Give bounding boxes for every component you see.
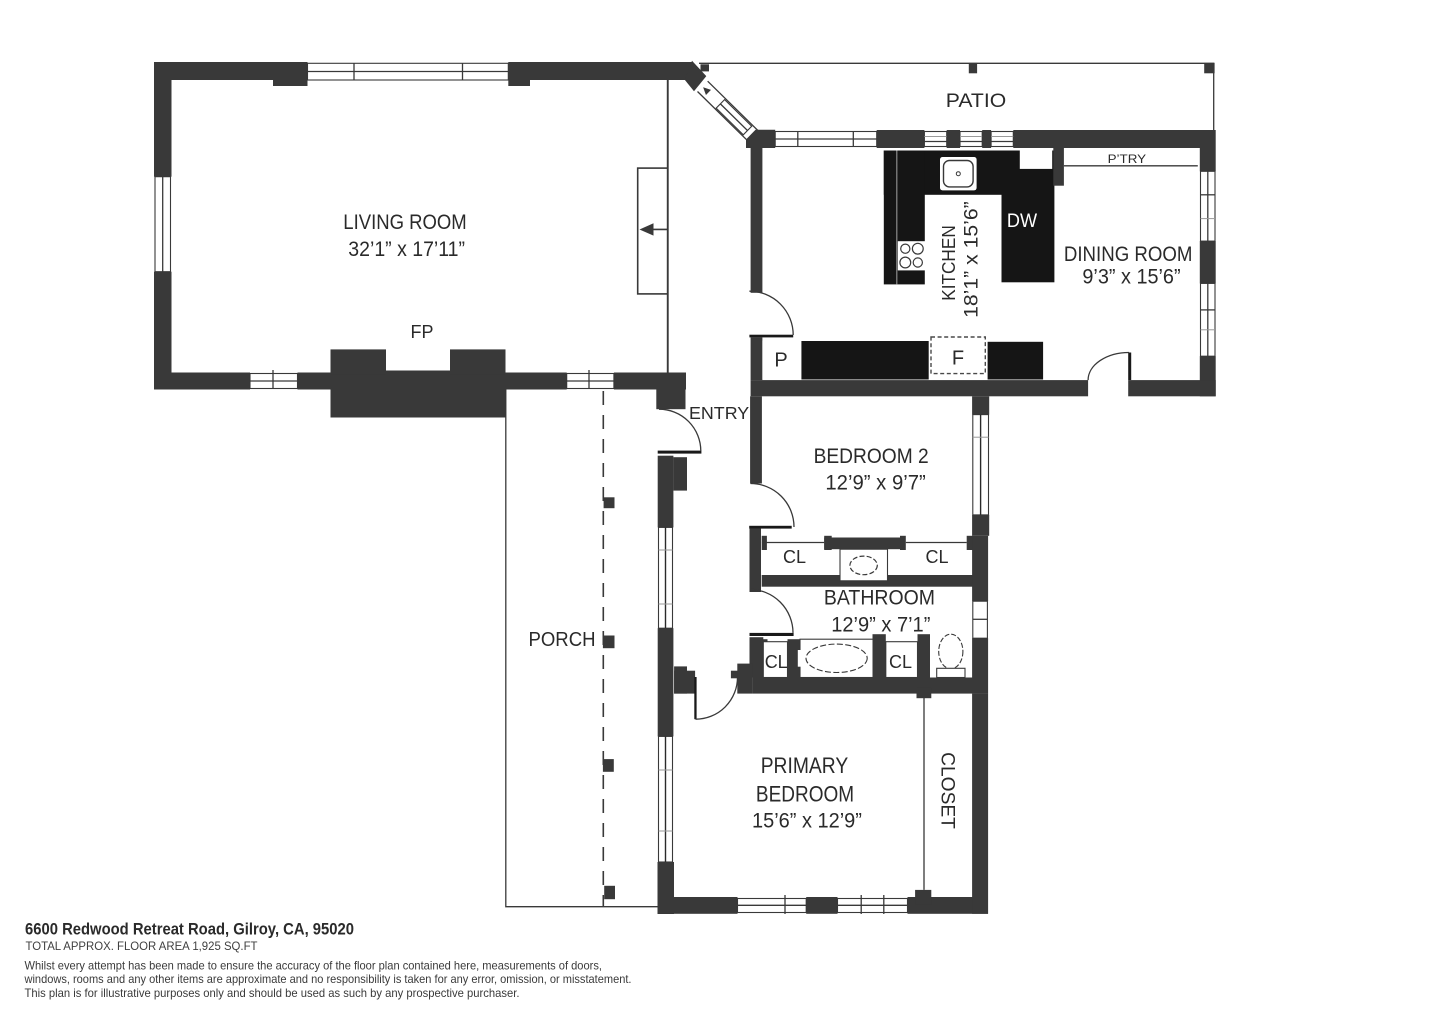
svg-text:CL: CL — [889, 652, 912, 672]
svg-text:PORCH: PORCH — [529, 629, 596, 651]
svg-text:9’3” x 15’6”: 9’3” x 15’6” — [1082, 266, 1180, 289]
svg-text:P: P — [774, 350, 787, 372]
svg-text:CLOSET: CLOSET — [937, 752, 959, 829]
svg-text:CL: CL — [783, 547, 806, 567]
svg-text:KITCHEN: KITCHEN — [939, 225, 959, 301]
svg-text:BEDROOM: BEDROOM — [756, 781, 854, 806]
svg-text:TOTAL APPROX. FLOOR AREA 1,925: TOTAL APPROX. FLOOR AREA 1,925 SQ.FT — [26, 939, 258, 953]
svg-text:15’6” x 12’9”: 15’6” x 12’9” — [752, 809, 862, 832]
svg-text:BATHROOM: BATHROOM — [824, 586, 935, 610]
svg-text:12’9” x 9’7”: 12’9” x 9’7” — [825, 471, 925, 494]
svg-text:32’1” x 17’11”: 32’1” x 17’11” — [348, 238, 465, 261]
svg-text:CL: CL — [765, 652, 788, 672]
svg-text:12’9” x 7’1”: 12’9” x 7’1” — [831, 614, 930, 637]
svg-text:Whilst every attempt has been: Whilst every attempt has been made to en… — [25, 960, 603, 973]
svg-text:DW: DW — [1007, 210, 1038, 232]
svg-text:windows, rooms and any other i: windows, rooms and any other items are a… — [24, 973, 632, 986]
svg-text:ENTRY: ENTRY — [689, 403, 750, 423]
svg-text:PATIO: PATIO — [946, 91, 1006, 112]
svg-text:LIVING ROOM: LIVING ROOM — [343, 211, 466, 234]
svg-text:F: F — [952, 348, 964, 370]
svg-text:FP: FP — [410, 322, 433, 342]
svg-text:CL: CL — [925, 547, 948, 567]
svg-text:6600 Redwood Retreat Road, Gil: 6600 Redwood Retreat Road, Gilroy, CA, 9… — [25, 920, 354, 939]
svg-text:PRIMARY: PRIMARY — [761, 753, 849, 778]
svg-text:18’1” x 15’6”: 18’1” x 15’6” — [962, 201, 983, 318]
svg-text:DINING ROOM: DINING ROOM — [1064, 243, 1193, 266]
svg-text:This plan is for illustrative: This plan is for illustrative purposes o… — [25, 987, 520, 1000]
svg-text:P’TRY: P’TRY — [1108, 152, 1147, 166]
svg-text:BEDROOM 2: BEDROOM 2 — [814, 444, 929, 468]
